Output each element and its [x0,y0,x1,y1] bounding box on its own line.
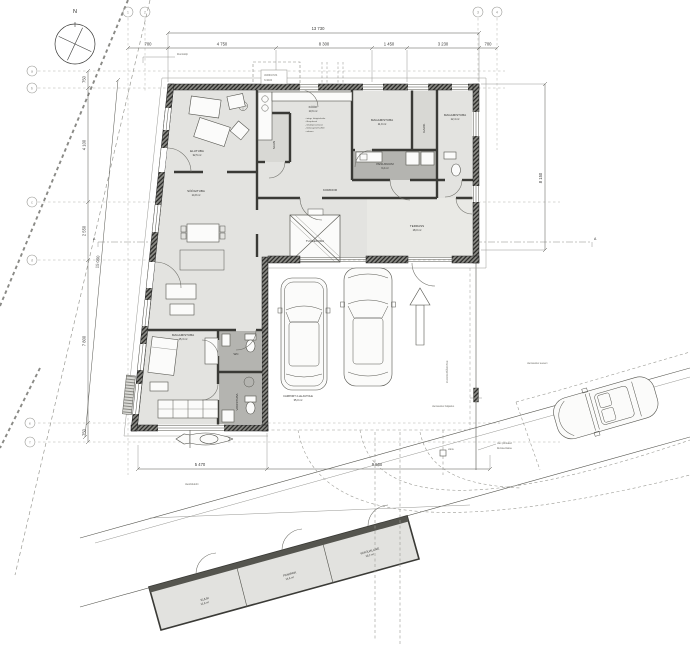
floor-plan-svg: 1 2 3 4 a b c d e f N A A 13 730 700 4 7… [0,0,690,645]
north-label: N [73,9,77,15]
section-label-right: A [594,237,597,241]
entry-label: TUULEKODA [306,239,324,243]
dim-bottom: 9 560 [372,462,383,467]
parked-car-1 [278,278,330,390]
dim-bottom: 5 470 [195,462,206,467]
svg-text:- nõudepesumasin: - nõudepesumasin [305,123,324,126]
dim-left: 4 100 [82,139,87,150]
road-edge-label: olemasolev teeserv [527,362,548,365]
gate-label: värav [448,448,455,451]
dim-seg: 8 300 [319,42,330,47]
svg-text:18,0 m²: 18,0 m² [413,228,422,232]
dim-seg: 1 450 [384,42,395,47]
grid-col-label: 4 [496,10,498,14]
grid-row-label: c [31,200,33,204]
svg-text:- töötasapind h=900: - töötasapind h=900 [305,127,325,130]
gate-symbol [440,450,446,456]
motorbike [176,430,233,448]
fence-note-1: olev piirdeaed [497,442,513,445]
bath-label: VANNITUBA [235,394,239,411]
svg-text:12,4 m²: 12,4 m² [451,117,460,121]
carport-label: CARPORT 2-LE AUTOLE [283,394,313,398]
terrace-label: TERRASS [410,224,424,228]
dim-right: 8 150 [538,172,543,183]
svg-text:35,0 m²: 35,0 m² [294,398,303,402]
junction-leader: liitumiskilp [143,53,189,63]
entry-ramp [290,209,340,262]
svg-text:13,6 m²: 13,6 m² [309,109,318,113]
living-label: ELUTUBA [190,149,204,153]
corridor-label: KORIDOR [323,188,338,192]
crossing-label: ülesõidukoht [185,483,199,486]
driveway-label: JUURDEPÄÄSUTEE [446,360,449,383]
site-boundary-lines [0,0,150,575]
closet-floor [412,90,437,150]
bedroom3-label: MAGAMISTUBA [172,333,194,337]
svg-text:- õhupuhasti: - õhupuhasti [305,120,318,123]
grid-row-label: d [31,258,33,262]
wc2-label: WC [234,352,240,356]
grid-row-label: b [31,86,33,90]
grid-row-label: f [30,440,31,444]
svg-text:15,3 m²: 15,3 m² [179,337,188,341]
bedroom1-label: MAGAMISTUBA [371,118,393,122]
dim-slant: 15 050 [94,255,100,269]
dim-left: 2 550 [82,225,87,236]
grid-row-label: a [31,69,33,73]
dim-left: 750 [82,75,87,83]
svg-text:- valamu: - valamu [305,131,314,133]
washroom-label: PESURUUM [376,162,394,166]
carport: JUURDEPÄÄSUTEE CARPORT 2-LE AUTOLE 35,0 … [278,268,449,402]
grid-col-label: 1 [127,10,129,14]
svg-text:6,2 m²: 6,2 m² [381,166,388,170]
grid-row-label: e [29,421,31,425]
grid-col-label: 2 [144,10,146,14]
grid-col-label: 3 [477,10,479,14]
parked-car-2 [341,268,396,386]
canopy-label-1: VARIKATUS [264,74,278,77]
dim-seg: 700 [145,42,153,47]
svg-text:- integr. köögitehnika: - integr. köögitehnika [305,117,326,120]
drive-arrow [410,288,430,345]
svg-text:11,9 m²: 11,9 m² [378,122,387,126]
dim-top-total: 13 730 [312,26,325,31]
svg-text:32,5 m²: 32,5 m² [193,153,202,157]
canopy-label-2: h=2400 [264,79,273,82]
convertible-car [549,370,662,446]
dim-seg: 4 750 [217,42,228,47]
outbuilding: KUUR 12,8 m² PANIPAIK 14,6 m² VARJUALUNE… [149,505,419,630]
dim-seg: 700 [485,42,493,47]
dining-label: SÖÖGITUBA [187,189,205,193]
yard-note: olemasolev haljastus [432,405,455,408]
junction-label: liitumiskilp [177,53,189,56]
floor-plan-page: 1 2 3 4 a b c d e f N A A 13 730 700 4 7… [0,0,690,645]
kitchen-label: KÖÖK [309,105,318,109]
dim-left: 7 800 [82,335,87,346]
north-compass: N [55,9,95,64]
closet-label: GARD. [422,123,426,133]
fence-note-2: likvideeritakse [497,447,513,450]
bedroom2-label: MAGAMISTUBA [444,113,466,117]
dim-seg: 3 230 [438,42,449,47]
sauna-label: SAUN [272,141,276,149]
section-label-left: A [93,237,96,241]
svg-text:14,8 m²: 14,8 m² [192,193,201,197]
